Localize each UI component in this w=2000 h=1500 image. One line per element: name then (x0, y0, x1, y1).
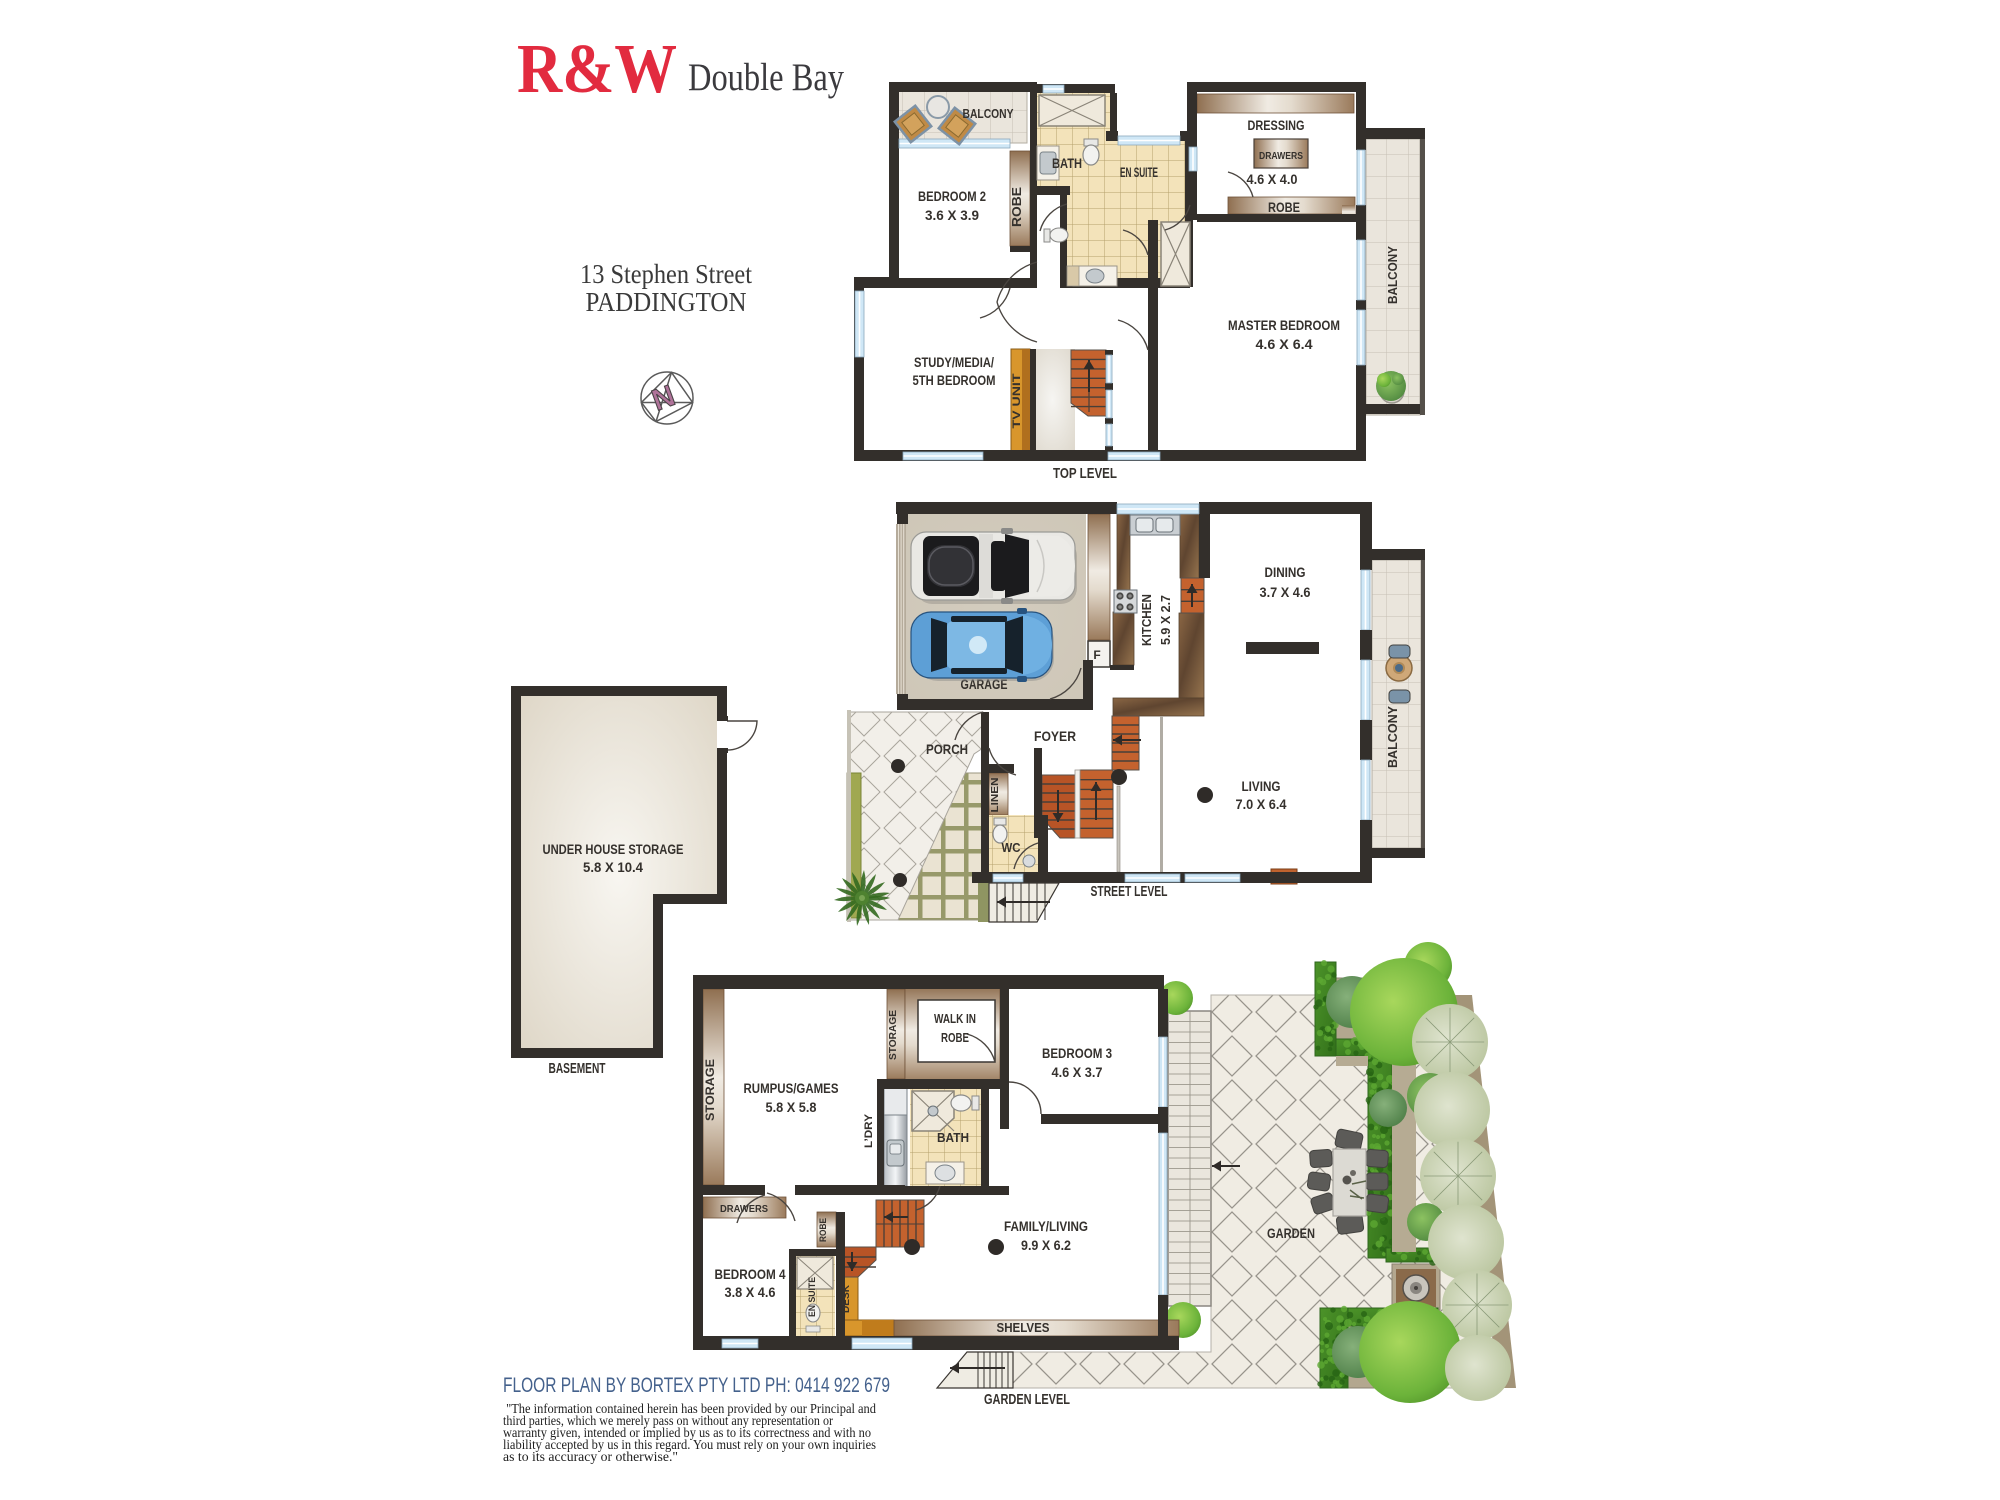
svg-text:BALCONY: BALCONY (963, 106, 1014, 121)
svg-text:SHELVES: SHELVES (997, 1321, 1050, 1335)
svg-text:ROBE: ROBE (818, 1218, 829, 1242)
svg-text:TV UNIT: TV UNIT (1011, 373, 1023, 428)
svg-text:PADDINGTON: PADDINGTON (586, 287, 747, 317)
svg-text:STORAGE: STORAGE (703, 1059, 717, 1121)
svg-text:LINEN: LINEN (990, 778, 1001, 813)
svg-text:FAMILY/LIVING: FAMILY/LIVING (1004, 1219, 1088, 1234)
svg-text:BEDROOM 4: BEDROOM 4 (715, 1267, 786, 1282)
svg-text:DRAWERS: DRAWERS (1259, 150, 1303, 162)
svg-text:13 Stephen Street: 13 Stephen Street (580, 259, 752, 289)
svg-text:3.7 X 4.6: 3.7 X 4.6 (1260, 585, 1311, 600)
svg-text:9.9 X 6.2: 9.9 X 6.2 (1021, 1238, 1071, 1253)
svg-text:EN SUITE: EN SUITE (1120, 165, 1158, 180)
svg-text:Double Bay: Double Bay (688, 56, 844, 99)
svg-text:DRESSING: DRESSING (1248, 118, 1305, 133)
svg-text:WALK IN: WALK IN (934, 1012, 976, 1026)
svg-text:BATH: BATH (1052, 156, 1082, 171)
svg-text:ROBE: ROBE (1010, 187, 1024, 227)
svg-text:BASEMENT: BASEMENT (549, 1060, 606, 1077)
svg-text:PORCH: PORCH (926, 741, 968, 757)
svg-text:FOYER: FOYER (1034, 728, 1076, 744)
svg-text:LIVING: LIVING (1242, 779, 1281, 794)
svg-text:L’DRY: L’DRY (863, 1113, 875, 1148)
svg-text:UNDER HOUSE STORAGE: UNDER HOUSE STORAGE (543, 842, 684, 857)
svg-text:EN SUITE: EN SUITE (807, 1277, 818, 1317)
svg-text:4.6 X 6.4: 4.6 X 6.4 (1256, 336, 1313, 352)
svg-text:7.0 X 6.4: 7.0 X 6.4 (1236, 797, 1287, 812)
svg-text:F: F (1093, 648, 1100, 662)
svg-text:R&W: R&W (517, 31, 677, 108)
svg-text:RUMPUS/GAMES: RUMPUS/GAMES (744, 1081, 839, 1096)
svg-text:STUDY/MEDIA/: STUDY/MEDIA/ (914, 355, 994, 370)
svg-text:ROBE: ROBE (1268, 200, 1300, 215)
svg-text:5TH BEDROOM: 5TH BEDROOM (913, 373, 996, 388)
svg-text:DINING: DINING (1265, 565, 1306, 580)
svg-text:5.8 X 5.8: 5.8 X 5.8 (766, 1100, 817, 1115)
svg-text:WC: WC (1002, 841, 1021, 855)
svg-text:TOP LEVEL: TOP LEVEL (1053, 465, 1117, 482)
svg-text:STREET LEVEL: STREET LEVEL (1091, 883, 1168, 900)
svg-text:3.6 X 3.9: 3.6 X 3.9 (925, 208, 979, 223)
svg-text:BALCONY: BALCONY (1385, 706, 1400, 768)
svg-text:KITCHEN: KITCHEN (1139, 594, 1154, 646)
svg-text:ROBE: ROBE (941, 1031, 969, 1045)
svg-text:BALCONY: BALCONY (1385, 246, 1400, 304)
svg-text:DESK: DESK (840, 1285, 852, 1313)
svg-text:FLOOR PLAN BY BORTEX PTY LTD P: FLOOR PLAN BY BORTEX PTY LTD PH: 0414 92… (503, 1374, 890, 1397)
svg-text:3.8 X 4.6: 3.8 X 4.6 (725, 1285, 776, 1300)
svg-text:as to its accuracy or otherwis: as to its accuracy or otherwise." (503, 1450, 678, 1465)
svg-text:STORAGE: STORAGE (887, 1010, 899, 1060)
svg-text:5.8 X 10.4: 5.8 X 10.4 (583, 860, 643, 875)
svg-text:4.6 X 3.7: 4.6 X 3.7 (1052, 1065, 1103, 1080)
svg-text:BEDROOM 3: BEDROOM 3 (1042, 1046, 1112, 1061)
svg-text:MASTER BEDROOM: MASTER BEDROOM (1228, 317, 1340, 333)
svg-text:5.9 X 2.7: 5.9 X 2.7 (1158, 595, 1173, 645)
svg-text:4.6 X 4.0: 4.6 X 4.0 (1247, 172, 1298, 187)
svg-text:BEDROOM 2: BEDROOM 2 (918, 189, 986, 204)
svg-text:GARDEN LEVEL: GARDEN LEVEL (984, 1391, 1070, 1408)
svg-text:BATH: BATH (937, 1130, 969, 1145)
svg-text:GARDEN: GARDEN (1267, 1225, 1315, 1241)
svg-text:DRAWERS: DRAWERS (720, 1203, 768, 1215)
